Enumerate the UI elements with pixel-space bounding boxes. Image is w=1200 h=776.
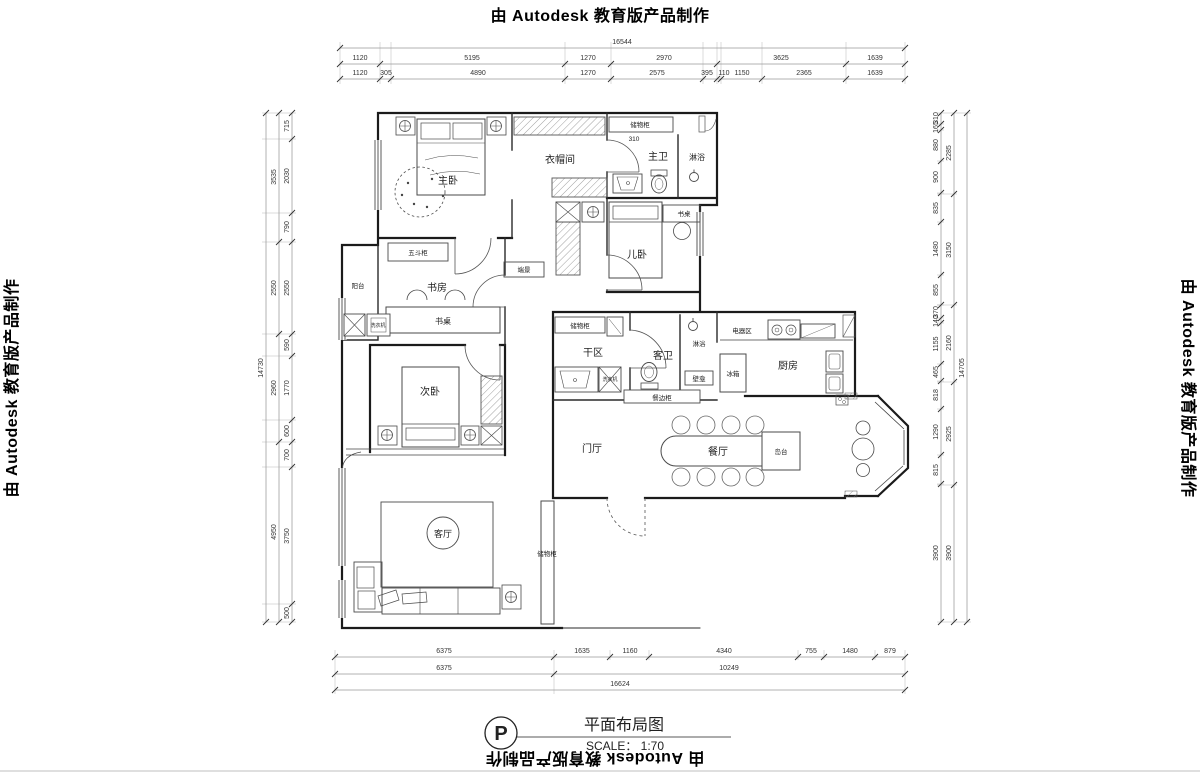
toilet-tank <box>641 383 658 389</box>
nightstand <box>378 426 397 445</box>
dim-text: 4950 <box>271 524 278 540</box>
dim-text: 1290 <box>933 424 940 440</box>
sofa-cushion <box>357 567 374 588</box>
dim-text: 10249 <box>719 665 739 672</box>
chair <box>722 468 740 486</box>
dim-text: 2160 <box>946 335 953 351</box>
label-fridge: 冰箱 <box>727 369 741 378</box>
door-master-bath <box>607 140 639 172</box>
dim-text: 1480 <box>933 241 940 257</box>
dim-text: 2970 <box>656 55 672 62</box>
door-swings <box>455 116 855 536</box>
bay-table <box>852 438 874 460</box>
dim-text: 1150 <box>734 70 749 77</box>
dim-text: 790 <box>284 221 291 233</box>
dim-text: 600 <box>284 425 291 437</box>
dim-text: 3900 <box>933 545 940 561</box>
floorplan-drawing: 16544 1120 5195 1270 2970 3625 1639 1120… <box>0 0 1200 776</box>
bed-second <box>402 367 459 447</box>
walls-inner <box>342 113 717 628</box>
round-rug <box>395 167 445 217</box>
chair <box>672 416 690 434</box>
label-storage-top: 储物柜 <box>630 120 650 129</box>
sofa-seat <box>382 588 500 614</box>
door-leaf-small <box>699 116 705 132</box>
dim-text: 1155 <box>933 336 940 351</box>
label-study-desk: 书桌 <box>435 316 451 326</box>
dim-text: 2550 <box>271 280 278 296</box>
bay-stool <box>857 464 870 477</box>
dim-text: 1480 <box>842 648 858 655</box>
dim-text: 4890 <box>470 70 486 77</box>
dim-text: 1770 <box>284 380 291 396</box>
dim-text: 6375 <box>436 648 452 655</box>
dim-text: 3535 <box>271 169 278 185</box>
dim-text: 6375 <box>436 665 452 672</box>
dim-text: 2960 <box>271 380 278 396</box>
wall-hatch <box>845 491 857 497</box>
label-sideboard: 餐边柜 <box>652 393 672 402</box>
dim-text: 2575 <box>649 70 665 77</box>
chair <box>722 416 740 434</box>
dim-text: 880 <box>933 139 940 151</box>
dim-text: 14730 <box>258 358 265 378</box>
dim-text: 3900 <box>946 545 953 561</box>
dim-text: 1120 <box>352 70 367 77</box>
dim-text: 16544 <box>612 39 632 46</box>
pillow <box>421 123 450 139</box>
thin-lines <box>342 340 904 491</box>
dimension-text-right: 14705 2285 3150 2160 2925 3900 310 165 8… <box>933 112 966 561</box>
toilet-master <box>652 175 667 193</box>
label-washer: 洗衣机 <box>370 322 385 329</box>
dim-text: 2925 <box>946 426 953 442</box>
door-master-bedroom <box>455 238 491 274</box>
label-drawer-chest: 五斗柜 <box>408 248 428 257</box>
pillow <box>453 123 482 139</box>
label-kids-desk: 书桌 <box>678 209 692 218</box>
storage-cabinet-living <box>541 501 554 624</box>
label-balcony: 阳台 <box>352 281 365 290</box>
dim-text: 879 <box>884 648 896 655</box>
pillow <box>406 428 455 440</box>
label-master-bath: 主卫 <box>648 151 668 163</box>
burner-icon <box>786 325 796 335</box>
chair <box>672 468 690 486</box>
dim-text: 14705 <box>959 358 966 378</box>
bay-stool <box>856 421 870 435</box>
dim-text: 500 <box>284 607 291 619</box>
label-storage-dim: 310 <box>629 136 640 143</box>
dim-text: 835 <box>933 202 940 214</box>
dim-text: 5195 <box>464 55 480 62</box>
dim-text: 465 <box>933 366 940 378</box>
door-entry <box>607 498 645 536</box>
dim-text: 1270 <box>580 70 596 77</box>
label-storage-mid: 储物柜 <box>570 321 590 330</box>
chair <box>674 223 691 240</box>
dim-text: 1639 <box>867 55 883 62</box>
label-cloakroom: 衣帽间 <box>545 153 575 166</box>
shower-head-icon <box>690 173 699 182</box>
dim-text: 140 <box>933 315 940 327</box>
wardrobe-second-bedroom <box>481 376 502 424</box>
drawing-scale: SCALE： 1:70 <box>586 739 664 753</box>
dim-text: 2365 <box>796 70 812 77</box>
dimension-text-top: 16544 1120 5195 1270 2970 3625 1639 1120… <box>352 39 882 77</box>
door-study <box>473 275 505 307</box>
label-dining-room: 餐厅 <box>708 445 728 458</box>
cloakroom-closet <box>514 117 605 135</box>
dim-text: 110 <box>718 70 729 77</box>
label-kids-room: 儿卧 <box>627 248 647 261</box>
label-study: 书房 <box>427 281 447 294</box>
dim-text: 590 <box>284 339 291 351</box>
label-living-room: 客厅 <box>434 528 452 539</box>
burner-icon <box>772 325 782 335</box>
dim-text: 305 <box>380 70 392 77</box>
dim-text: 1635 <box>574 648 590 655</box>
chair <box>697 468 715 486</box>
sofa-cushion <box>358 591 375 609</box>
dim-text: 818 <box>933 389 940 401</box>
drawing-title: 平面布局图 <box>584 716 664 734</box>
dim-text: 715 <box>284 120 291 132</box>
dim-text: 2030 <box>284 168 291 184</box>
door-second-bedroom <box>465 345 500 380</box>
dim-text: 855 <box>933 284 940 296</box>
closet-vertical <box>556 222 580 275</box>
label-guest-bath: 客卫 <box>653 349 673 362</box>
dim-text: 4340 <box>716 648 732 655</box>
label-master-bedroom: 主卧 <box>438 174 458 187</box>
label-niche: 壁龛 <box>693 374 707 383</box>
sofa-throw <box>378 590 427 606</box>
dim-text: 755 <box>805 648 817 655</box>
stove <box>768 320 800 339</box>
plan-marker-letter: P <box>494 723 507 745</box>
dim-text: 1270 <box>580 55 596 62</box>
dim-text: 2285 <box>946 145 953 161</box>
dim-text: 16624 <box>610 681 630 688</box>
chair <box>746 468 764 486</box>
pillow <box>613 206 658 219</box>
label-master-shower: 淋浴 <box>689 152 705 162</box>
label-island: 岛台 <box>775 447 788 456</box>
dim-text: 3750 <box>284 528 291 544</box>
label-feature-wall: 端景 <box>518 265 532 274</box>
label-washer-dry: 洗衣机 <box>602 376 617 383</box>
dim-text: 2550 <box>284 280 291 296</box>
label-second-bedroom: 次卧 <box>420 385 440 398</box>
dim-text: 1639 <box>867 70 883 77</box>
shower-head-icon <box>689 322 698 331</box>
label-entry-hall: 门厅 <box>582 442 602 455</box>
title-block: P 平面布局图 SCALE： 1:70 <box>0 716 1200 771</box>
dim-text: 815 <box>933 464 940 476</box>
bed-kids <box>609 202 662 278</box>
toilet-guest <box>641 363 657 382</box>
dim-text: 3625 <box>773 55 789 62</box>
dim-text: 1160 <box>622 648 637 655</box>
closet-strip <box>552 178 607 197</box>
dim-text: 165 <box>933 121 940 133</box>
wall-hatch <box>845 393 857 399</box>
chair <box>746 416 764 434</box>
dim-text: 3150 <box>946 242 953 258</box>
label-dry-area: 干区 <box>583 347 603 359</box>
label-appliance-area: 电器区 <box>732 326 752 335</box>
cad-floorplan-page: 由 Autodesk 教育版产品制作 由 Autodesk 教育版产品制作 由 … <box>0 0 1200 776</box>
dim-text: 395 <box>701 70 713 77</box>
label-storage-living: 储物柜 <box>537 549 557 558</box>
dim-text: 1120 <box>352 55 367 62</box>
label-guest-shower: 淋浴 <box>693 339 707 348</box>
dim-text: 900 <box>933 171 940 183</box>
dim-text: 700 <box>284 449 291 461</box>
chair <box>697 416 715 434</box>
label-kitchen: 厨房 <box>778 359 798 372</box>
dimension-text-left: 14730 3535 2550 2960 4950 715 2030 790 2… <box>258 120 291 619</box>
